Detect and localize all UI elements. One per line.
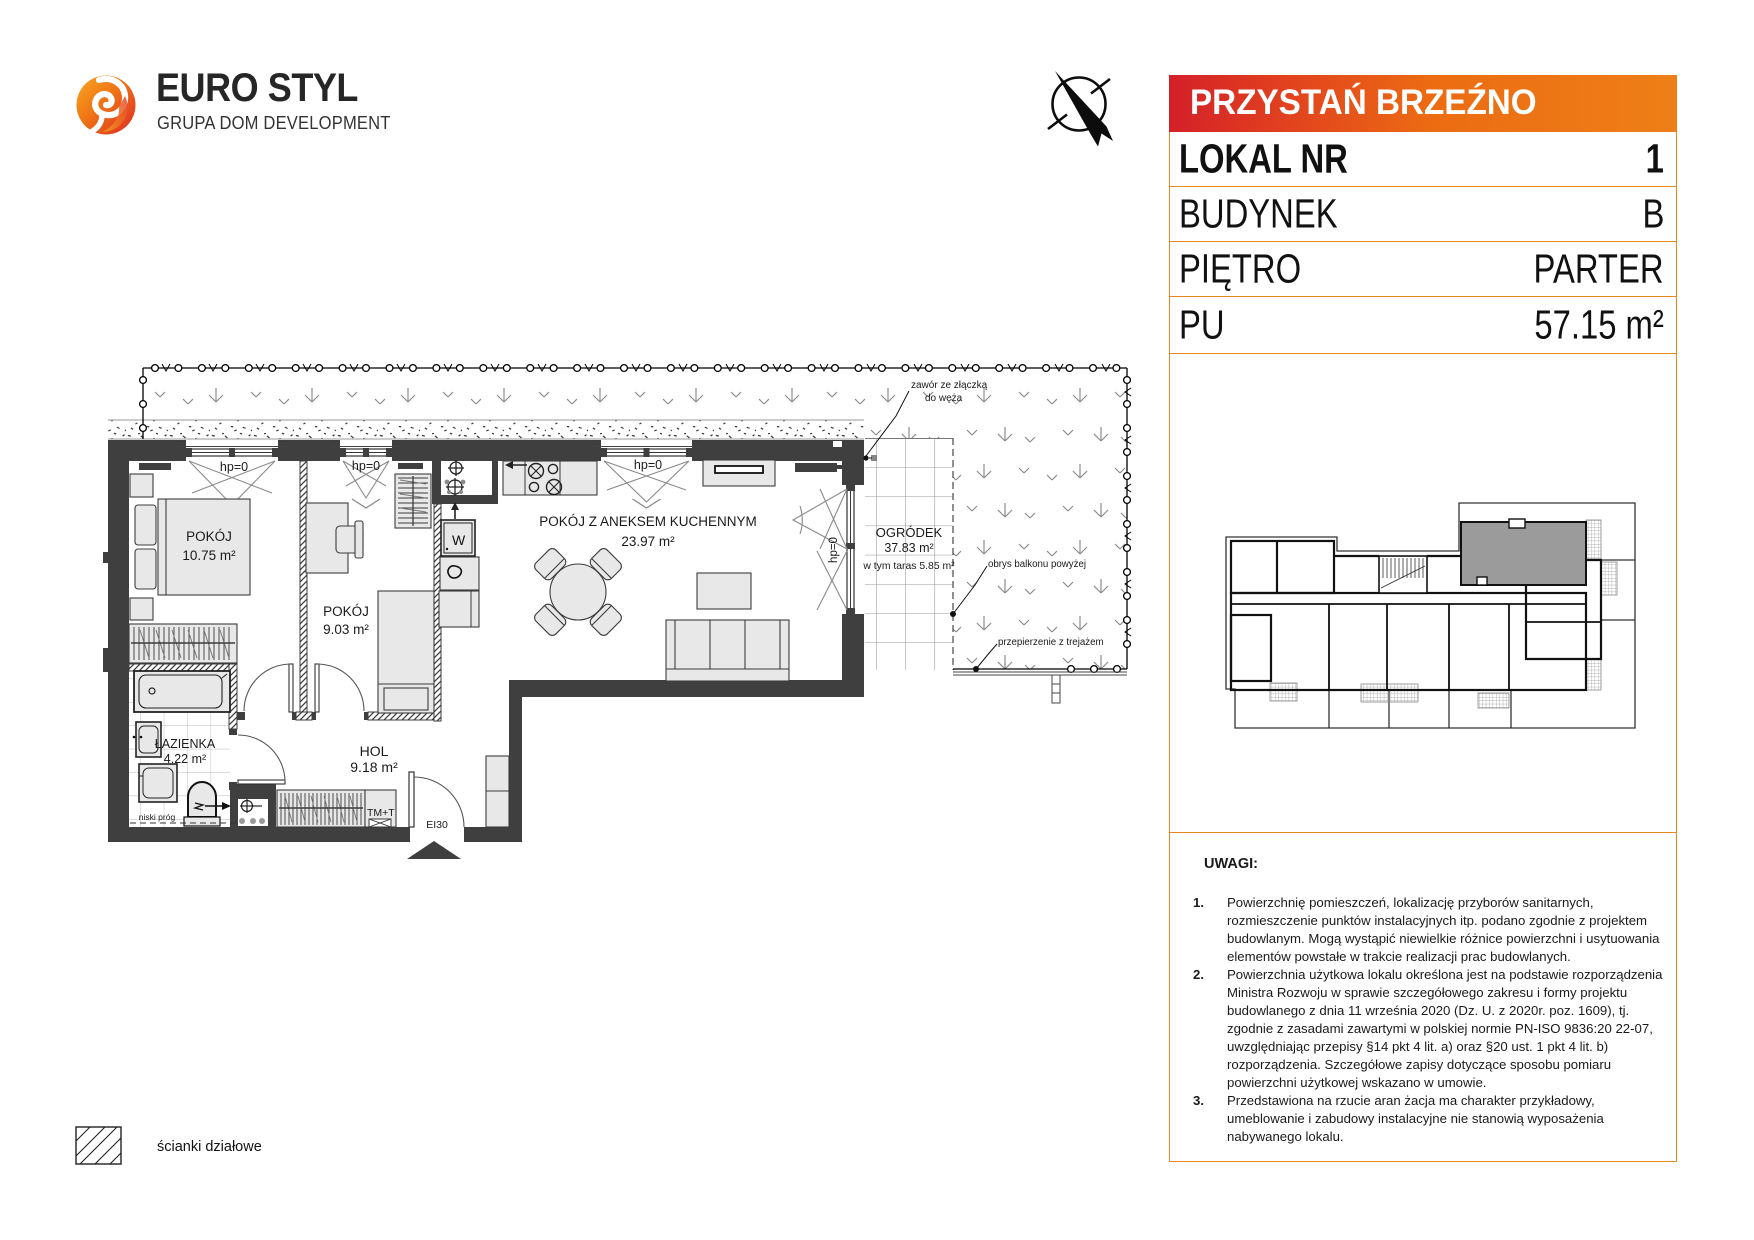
- svg-text:obrys balkonu powyżej: obrys balkonu powyżej: [988, 559, 1086, 570]
- svg-text:hp=0: hp=0: [634, 458, 662, 472]
- svg-text:do węża: do węża: [925, 393, 963, 404]
- svg-text:23.97 m²: 23.97 m²: [621, 534, 675, 549]
- svg-text:9.18 m²: 9.18 m²: [350, 759, 398, 775]
- svg-text:zawór ze złączką: zawór ze złączką: [911, 380, 988, 391]
- svg-text:niski próg: niski próg: [139, 812, 176, 822]
- svg-text:hp=0: hp=0: [828, 537, 840, 563]
- svg-text:w tym taras 5.85 m²: w tym taras 5.85 m²: [862, 561, 955, 572]
- svg-text:POKÓJ: POKÓJ: [323, 604, 369, 619]
- svg-text:POKÓJ: POKÓJ: [186, 529, 232, 544]
- svg-text:EI30: EI30: [426, 819, 448, 831]
- svg-text:hp=0: hp=0: [220, 460, 248, 474]
- svg-text:OGRÓDEK: OGRÓDEK: [876, 525, 943, 540]
- svg-text:9.03 m²: 9.03 m²: [323, 622, 369, 637]
- svg-text:W: W: [452, 532, 466, 548]
- svg-text:przepierzenie z trejażem: przepierzenie z trejażem: [998, 637, 1104, 648]
- svg-text:hp=0: hp=0: [352, 459, 380, 473]
- svg-text:37.83 m²: 37.83 m²: [884, 541, 933, 555]
- svg-text:4.22 m²: 4.22 m²: [164, 752, 206, 766]
- svg-text:HOL: HOL: [360, 743, 389, 759]
- svg-text:TM+T: TM+T: [367, 807, 395, 819]
- svg-text:10.75 m²: 10.75 m²: [182, 548, 236, 563]
- svg-text:POKÓJ Z ANEKSEM KUCHENNYM: POKÓJ Z ANEKSEM KUCHENNYM: [539, 514, 757, 529]
- svg-text:ścianki działowe: ścianki działowe: [157, 1139, 262, 1155]
- svg-text:ŁAZIENKA: ŁAZIENKA: [155, 737, 216, 751]
